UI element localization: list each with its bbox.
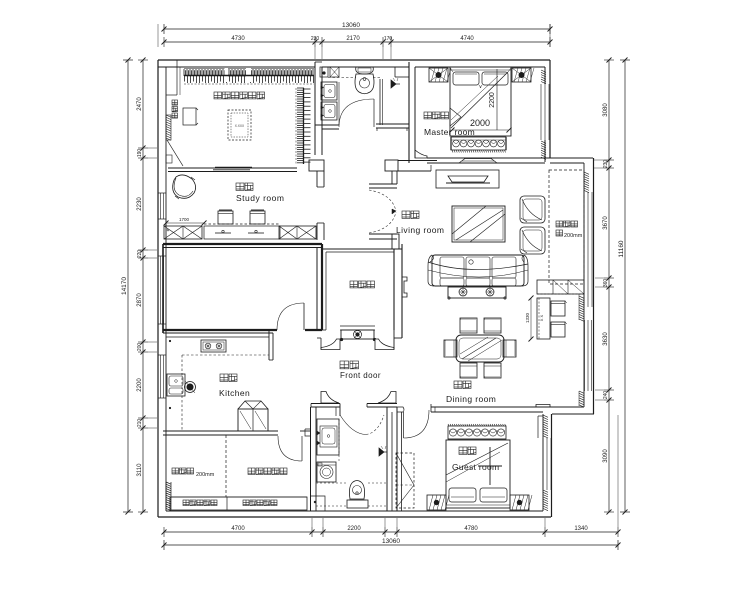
svg-text:4740: 4740	[460, 36, 474, 42]
svg-text:2870: 2870	[137, 293, 143, 307]
svg-text:3090: 3090	[603, 449, 609, 463]
svg-text:2200: 2200	[137, 378, 143, 392]
svg-text:X X: X X	[539, 314, 544, 321]
svg-text:190: 190	[137, 149, 143, 158]
svg-text:3630: 3630	[603, 332, 609, 346]
svg-text:Study room: Study room	[236, 193, 284, 203]
svg-text:11160: 11160	[618, 240, 625, 257]
svg-text:Kitchen: Kitchen	[219, 388, 250, 398]
svg-text:1330: 1330	[525, 312, 530, 323]
svg-text:220: 220	[137, 250, 143, 259]
svg-text:4780: 4780	[464, 526, 478, 532]
svg-text:230: 230	[603, 160, 609, 169]
svg-text:Dining room: Dining room	[446, 394, 496, 404]
svg-text:2200: 2200	[489, 92, 496, 108]
svg-text:2200: 2200	[347, 526, 361, 532]
svg-text:240: 240	[603, 391, 609, 400]
svg-text:13060: 13060	[342, 22, 360, 29]
svg-text:1700: 1700	[179, 217, 190, 222]
svg-text:Guest room: Guest room	[452, 462, 499, 472]
svg-text:230: 230	[311, 36, 320, 42]
svg-text:4700: 4700	[231, 526, 245, 532]
svg-text:3670: 3670	[603, 216, 609, 230]
svg-text:170: 170	[384, 36, 393, 42]
svg-text:13060: 13060	[382, 538, 400, 545]
svg-text:200mm: 200mm	[564, 233, 583, 239]
svg-text:3080: 3080	[603, 103, 609, 117]
svg-text:1340: 1340	[574, 526, 588, 532]
svg-text:2230: 2230	[137, 197, 143, 211]
svg-text:3110: 3110	[137, 463, 143, 477]
svg-text:Front door: Front door	[340, 371, 381, 380]
svg-text:2170: 2170	[346, 36, 360, 42]
svg-text:X.XXX: X.XXX	[235, 124, 245, 128]
svg-text:200mm: 200mm	[196, 472, 215, 478]
svg-text:4730: 4730	[231, 36, 245, 42]
svg-text:14170: 14170	[121, 277, 128, 295]
svg-text:210: 210	[137, 419, 143, 428]
svg-text:2470: 2470	[137, 97, 143, 111]
svg-text:Living room: Living room	[396, 225, 444, 235]
svg-text:200: 200	[137, 343, 143, 352]
svg-text:Master room: Master room	[424, 127, 475, 137]
svg-text:360: 360	[603, 279, 609, 288]
